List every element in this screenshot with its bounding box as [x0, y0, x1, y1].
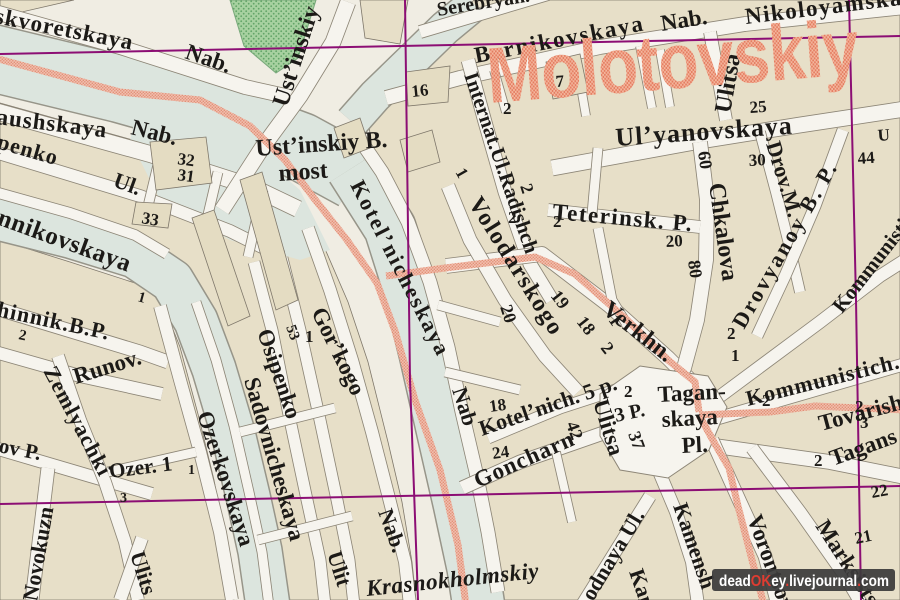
svg-text:20: 20	[665, 231, 683, 251]
svg-text:3: 3	[860, 413, 869, 432]
svg-text:2: 2	[762, 391, 771, 410]
svg-text:2: 2	[624, 382, 633, 401]
svg-text:22: 22	[869, 480, 889, 502]
svg-text:Pl.: Pl.	[681, 432, 708, 458]
svg-text:2: 2	[508, 208, 517, 227]
svg-text:30: 30	[748, 150, 766, 170]
svg-text:2: 2	[727, 324, 736, 343]
svg-text:1: 1	[731, 346, 740, 365]
svg-text:Tagan-: Tagan-	[657, 378, 726, 407]
svg-text:31: 31	[176, 165, 195, 186]
svg-text:18: 18	[488, 395, 507, 416]
svg-text:16: 16	[410, 80, 429, 101]
svg-text:1: 1	[188, 463, 195, 478]
svg-text:60: 60	[694, 150, 716, 171]
svg-text:33: 33	[140, 208, 160, 230]
svg-text:44: 44	[857, 148, 876, 168]
svg-text:24: 24	[491, 442, 511, 463]
svg-text:25: 25	[749, 97, 767, 117]
svg-text:3: 3	[120, 491, 127, 506]
svg-text:most: most	[278, 158, 329, 187]
svg-text:deadOKey.livejournal.com: deadOKey.livejournal.com	[719, 573, 889, 590]
svg-text:1: 1	[305, 327, 314, 346]
svg-text:skaya: skaya	[661, 404, 719, 432]
svg-text:U: U	[877, 125, 891, 145]
svg-text:2: 2	[814, 451, 823, 470]
svg-text:80: 80	[684, 259, 706, 280]
svg-text:2: 2	[553, 212, 562, 231]
